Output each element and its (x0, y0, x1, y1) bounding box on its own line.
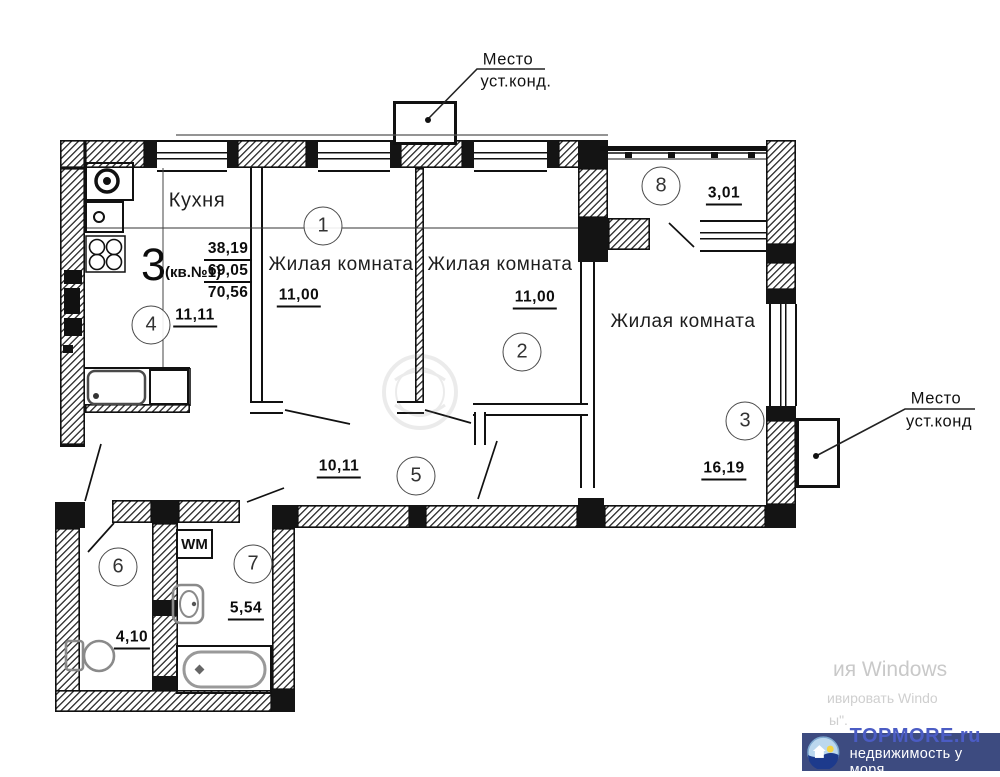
area-usable: 69,05 (204, 261, 252, 283)
washing-machine-box: WM (176, 529, 213, 559)
room-label-living-1: Жилая комната (268, 254, 413, 276)
room-label-living-3: Жилая комната (610, 311, 755, 333)
room-bubble-7: 7 (234, 545, 273, 584)
room-area-kitchen: 11,11 (173, 307, 217, 328)
brand-banner: TOPMORE.ru недвижимость у моря (802, 733, 1000, 771)
room-area-hall: 10,11 (317, 458, 361, 479)
leader-dot (813, 453, 819, 459)
room-label-kitchen: Кухня (169, 190, 226, 213)
room-bubble-1: 1 (304, 207, 343, 246)
windows-watermark-line1: ия Windows (833, 658, 947, 682)
flat-type: 3 (141, 242, 166, 287)
area-living: 38,19 (204, 239, 252, 261)
toilet (66, 641, 114, 671)
floor-plan-canvas: 3 (кв.№1) 38,19 69,05 70,56 Кухня Жилая … (0, 0, 1000, 777)
room-area-wc: 4,10 (114, 629, 150, 650)
room-area-living-3: 16,19 (701, 460, 746, 481)
ac-annotation-top-line1: Место (483, 51, 533, 70)
brand-logo-icon (807, 736, 840, 769)
ac-annotation-top-line2: уст.конд. (480, 73, 551, 92)
room-area-balcony: 3,01 (706, 185, 742, 206)
room-bubble-5: 5 (397, 457, 436, 496)
ac-annotation-right-line1: Место (911, 390, 961, 409)
brand-text: TOPMORE.ru недвижимость у моря (850, 726, 1000, 777)
brand-title: TOPMORE.ru (850, 726, 1000, 747)
brand-subtitle: недвижимость у моря (850, 747, 1000, 777)
watermark-emblem (384, 356, 456, 428)
room-bubble-6: 6 (99, 548, 138, 587)
windows-watermark-line2: ивировать Windo (827, 690, 938, 706)
room-bubble-3: 3 (726, 402, 765, 441)
room-bubble-4: 4 (132, 306, 171, 345)
leader-dot (425, 117, 431, 123)
room-bubble-8: 8 (642, 167, 681, 206)
windows-watermark-line3: ы". (829, 712, 848, 728)
area-stack: 38,19 69,05 70,56 (204, 239, 252, 303)
ac-annotation-right-line2: уст.конд (906, 413, 972, 432)
area-total: 70,56 (204, 283, 252, 303)
room-area-bath: 5,54 (228, 600, 264, 621)
room-area-living-1: 11,00 (277, 287, 321, 308)
room-area-living-2: 11,00 (513, 289, 557, 310)
room-label-living-2: Жилая комната (427, 254, 572, 276)
room-bubble-2: 2 (503, 333, 542, 372)
